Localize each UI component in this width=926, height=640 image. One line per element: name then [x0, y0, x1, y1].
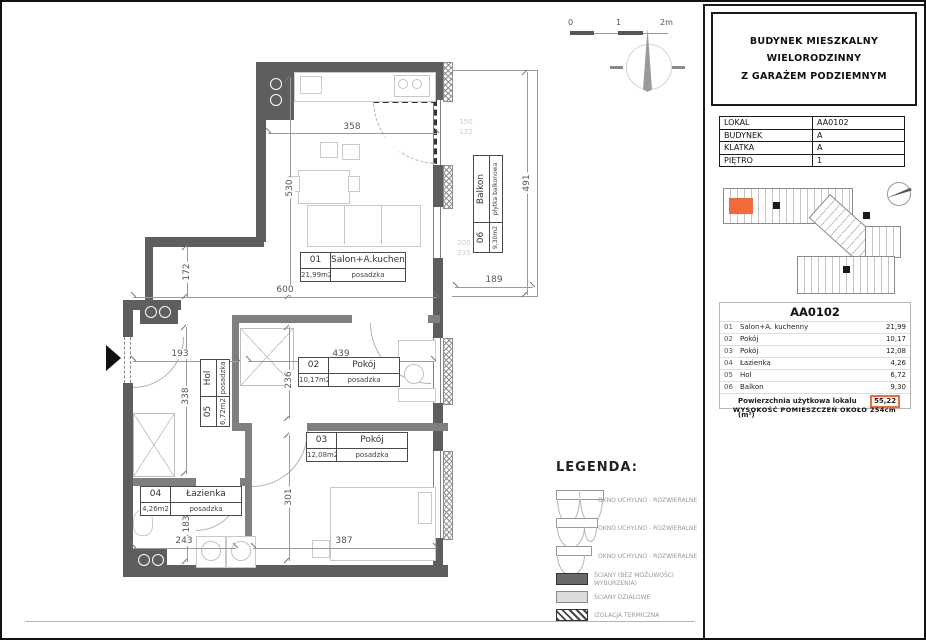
- legend-partition-swatch: [556, 591, 588, 603]
- wall-segment: [433, 165, 443, 207]
- row-name: Pokój: [738, 346, 870, 357]
- stairwell-marker: [863, 212, 870, 219]
- hob-burner: [412, 79, 422, 89]
- dining-table: [298, 170, 350, 204]
- scale-label-0: 0: [568, 18, 573, 27]
- room-floor: posadzka: [337, 449, 407, 461]
- project-title-line2: Z GARAŻEM PODZIEMNYM: [713, 68, 915, 85]
- wall-segment: [256, 62, 442, 72]
- dimension-label-faint: 200: [457, 239, 470, 247]
- room-name: Pokój: [329, 358, 399, 373]
- room-label-salon: 01Salon+A.kuchenny 21,99m2posadzka: [300, 252, 406, 282]
- dimension-line: [455, 287, 533, 288]
- room-number: 04: [141, 487, 171, 502]
- row-no: 04: [720, 358, 738, 369]
- meter-icon: [159, 306, 171, 318]
- dimension-label: 301: [284, 486, 294, 507]
- insulation-hatch: [443, 165, 453, 209]
- dimension-label-faint: 235: [457, 249, 470, 257]
- legend-wall-swatch: [556, 573, 588, 585]
- wall-segment: [433, 258, 443, 338]
- schedule-row: 05Hol6,72: [720, 369, 910, 381]
- wall-segment: [145, 247, 153, 307]
- dimension-label: 491: [522, 172, 532, 193]
- partition-wall: [232, 315, 352, 323]
- stairwell-marker: [773, 202, 780, 209]
- partition-wall: [240, 478, 246, 486]
- wall-segment: [123, 565, 448, 577]
- entrance-door-leaf: [130, 337, 131, 383]
- entrance-door-leaf: [124, 337, 125, 383]
- row-name: Pokój: [738, 334, 870, 345]
- info-label: KLATKA: [720, 142, 813, 154]
- window-symbol-mullion: [579, 490, 580, 498]
- room-area: 10,17m2: [299, 374, 329, 386]
- room-label-hol: 05Hol 6,72m2posadzka: [200, 359, 230, 427]
- unit-info-table: LOKALAA0102 BUDYNEKA KLATKAA PIĘTRO1: [719, 116, 905, 167]
- row-no: 03: [720, 346, 738, 357]
- dimension-label: 236: [284, 369, 294, 390]
- window-swing-arc: [584, 527, 597, 542]
- room-area: 6,72m2: [217, 396, 229, 426]
- room-number: 05: [201, 396, 216, 426]
- balcony-edge: [537, 70, 538, 297]
- meter-icon: [138, 554, 150, 566]
- room-label-lazienka: 04Łazienka 4,26m2posadzka: [140, 486, 242, 516]
- dimension-label: 530: [285, 177, 295, 198]
- insulation-hatch: [443, 451, 453, 540]
- row-name: Łazienka: [738, 358, 870, 369]
- entrance-arrow: [106, 345, 121, 371]
- dimension-line: [133, 297, 437, 298]
- meter-icon: [152, 554, 164, 566]
- partition-wall: [307, 423, 448, 431]
- appliance-icon: [270, 94, 282, 106]
- room-label-pokoj2: 02Pokój 10,17m2posadzka: [298, 357, 400, 387]
- door-swing-arc: [133, 337, 184, 388]
- north-arrow-icon: [604, 24, 694, 100]
- info-value: AA0102: [813, 117, 904, 129]
- row-value: 10,17: [870, 334, 910, 345]
- info-label: BUDYNEK: [720, 130, 813, 142]
- sheet-divider: [25, 621, 695, 622]
- scale-segment: [570, 31, 594, 35]
- row-name: Balkon: [738, 382, 870, 393]
- stool: [342, 144, 360, 160]
- room-label-pokoj3: 03Pokój 12,08m2posadzka: [306, 432, 408, 462]
- room-floor: płytka balkonowa: [490, 156, 502, 222]
- balcony-edge: [452, 296, 538, 297]
- building-wing: [797, 256, 895, 294]
- room-area: 9,30m2: [490, 222, 502, 252]
- room-name: Balkon: [474, 156, 489, 222]
- room-name: Pokój: [337, 433, 407, 448]
- info-row: PIĘTRO1: [720, 154, 904, 167]
- legend-partition-label: ŚCIANY DZIAŁOWE: [594, 594, 650, 601]
- stool: [320, 142, 338, 158]
- row-value: 21,99: [870, 322, 910, 333]
- highlighted-unit: [729, 198, 753, 214]
- dimension-label: 338: [181, 385, 191, 406]
- dimension-label: 600: [274, 285, 295, 295]
- partition-wall: [232, 423, 252, 431]
- row-value: 9,30: [870, 382, 910, 393]
- building-wing: [865, 226, 901, 258]
- legend-insulation-swatch: [556, 609, 588, 621]
- info-row: KLATKAA: [720, 141, 904, 154]
- schedule-row: 04Łazienka4,26: [720, 357, 910, 369]
- room-label-balkon: 06Balkon 9,30m2płytka balkonowa: [473, 155, 503, 253]
- room-number: 06: [474, 222, 489, 252]
- shelf: [398, 388, 436, 402]
- dimension-label: 172: [182, 261, 192, 282]
- door-swing-arc: [252, 431, 308, 487]
- floor-plan-sheet: 0 1 2m: [0, 0, 926, 640]
- insulation-hatch: [443, 62, 453, 102]
- dimension-label: 183: [182, 513, 192, 534]
- partition-wall: [133, 478, 196, 486]
- chair: [404, 364, 424, 384]
- room-floor: posadzka: [217, 360, 229, 396]
- sofa-cushion-line: [381, 206, 382, 244]
- insulation-hatch: [443, 338, 453, 405]
- info-label: LOKAL: [720, 117, 813, 129]
- row-value: 6,72: [870, 370, 910, 381]
- dimension-label: 243: [173, 536, 194, 546]
- sofa: [307, 205, 421, 247]
- project-title: BUDYNEK MIESZKALNY WIELORODZINNY Z GARAŻ…: [711, 12, 917, 106]
- room-area: 12,08m2: [307, 449, 337, 461]
- kitchen-sink: [300, 76, 322, 94]
- row-value: 4,26: [870, 358, 910, 369]
- schedule-row: 01Salon+A. kuchenny21,99: [720, 321, 910, 333]
- site-north-icon: [887, 182, 911, 206]
- balcony-door-swing-arc: [373, 100, 437, 164]
- schedule-row: 06Balkon9,30: [720, 381, 910, 393]
- room-name: Salon+A.kuchenny: [331, 253, 405, 268]
- partition-wall: [428, 315, 440, 323]
- legend-window-label: OKNO UCHYLNO - ROZWIERALNE: [598, 497, 697, 504]
- wall-segment: [145, 237, 264, 247]
- room-floor: posadzka: [329, 374, 399, 386]
- dimension-line: [253, 548, 436, 549]
- schedule-header: AA0102: [720, 303, 910, 321]
- dimension-label-faint: 122: [459, 128, 472, 136]
- room-name: Hol: [201, 360, 216, 396]
- room-number: 02: [299, 358, 329, 373]
- row-no: 05: [720, 370, 738, 381]
- row-no: 06: [720, 382, 738, 393]
- room-name: Łazienka: [171, 487, 241, 502]
- info-row: BUDYNEKA: [720, 129, 904, 142]
- site-plan: [715, 178, 913, 304]
- schedule-row: 02Pokój10,17: [720, 333, 910, 345]
- info-value: 1: [813, 155, 904, 167]
- info-label: PIĘTRO: [720, 155, 813, 167]
- legend-wall-label: ŚCIANY (BEZ MOŻLIWOŚCI WYBURZENIA): [594, 572, 694, 587]
- pillow: [418, 492, 432, 524]
- room-floor: posadzka: [171, 503, 241, 515]
- nightstand: [312, 540, 330, 558]
- dimension-line: [133, 548, 236, 549]
- info-value: A: [813, 130, 904, 142]
- legend-insulation-label: IZOLACJA TERMICZNA: [594, 612, 659, 619]
- room-floor: posadzka: [331, 269, 405, 281]
- window-swing-arc: [557, 527, 585, 548]
- dimension-line: [268, 133, 437, 134]
- partition-wall: [232, 315, 239, 431]
- project-title-line1: BUDYNEK MIESZKALNY WIELORODZINNY: [713, 33, 915, 67]
- stairwell-marker: [843, 266, 850, 273]
- info-panel: BUDYNEK MIESZKALNY WIELORODZINNY Z GARAŻ…: [703, 4, 926, 640]
- row-no: 01: [720, 322, 738, 333]
- row-no: 02: [720, 334, 738, 345]
- room-schedule: AA0102 01Salon+A. kuchenny21,99 02Pokój1…: [719, 302, 911, 409]
- chair: [348, 176, 360, 192]
- dimension-label: 189: [483, 275, 504, 285]
- room-area: 21,99m2: [301, 269, 331, 281]
- row-value: 12,08: [870, 346, 910, 357]
- dimension-label: 387: [333, 536, 354, 546]
- dimension-label-faint: 150: [459, 118, 472, 126]
- row-name: Salon+A. kuchenny: [738, 322, 870, 333]
- info-value: A: [813, 142, 904, 154]
- appliance-icon: [270, 78, 282, 90]
- ceiling-height-note: WYSOKOŚĆ POMIESZCZEŃ OKOŁO 254cm: [705, 406, 924, 414]
- info-row: LOKALAA0102: [720, 117, 904, 129]
- schedule-row: 03Pokój12,08: [720, 345, 910, 357]
- room-area: 4,26m2: [141, 503, 171, 515]
- desk: [398, 340, 436, 362]
- room-number: 03: [307, 433, 337, 448]
- legend-window-label: OKNO UCHYLNO - ROZWIERALNE: [598, 525, 697, 532]
- hob-burner: [398, 79, 408, 89]
- sofa-cushion-line: [344, 206, 345, 244]
- row-name: Hol: [738, 370, 870, 381]
- meter-icon: [145, 306, 157, 318]
- dimension-label: 358: [341, 122, 362, 132]
- room-number: 01: [301, 253, 331, 268]
- legend-window-label: OKNO UCHYLNO - ROZWIERALNE: [598, 553, 697, 560]
- wardrobe: [133, 413, 175, 477]
- washing-machine-drum: [201, 541, 221, 561]
- window: [433, 207, 441, 258]
- dimension-label: 193: [169, 349, 190, 359]
- legend-title: LEGENDA:: [556, 460, 638, 475]
